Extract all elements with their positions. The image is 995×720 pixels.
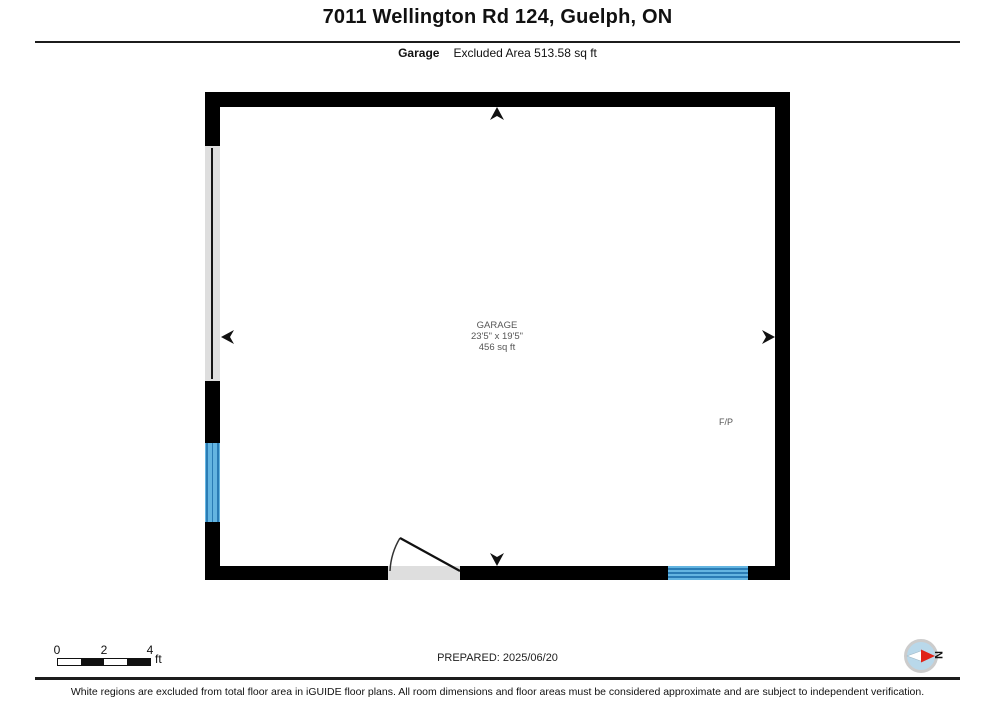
wall-bottom-left <box>205 566 388 580</box>
wall-right <box>775 92 790 580</box>
footer-divider <box>35 677 960 680</box>
disclaimer-text: White regions are excluded from total fl… <box>0 686 995 698</box>
dimension-arrow-left-icon <box>221 330 235 344</box>
floor-label: Garage <box>398 46 439 60</box>
wall-top <box>205 92 790 107</box>
wall-bottom-right <box>748 566 790 580</box>
room-name: GARAGE <box>427 320 567 331</box>
garage-door-line <box>211 148 213 379</box>
dimension-arrow-right-icon <box>761 330 775 344</box>
window-bottom <box>668 566 748 580</box>
excluded-area-label: Excluded Area 513.58 sq ft <box>453 46 596 60</box>
room-label: GARAGE 23'5" x 19'5" 456 sq ft <box>427 320 567 353</box>
garage-door-opening <box>205 146 220 381</box>
header-divider <box>35 41 960 43</box>
wall-bottom-middle <box>460 566 668 580</box>
window-pane-line <box>668 576 748 578</box>
window-pane-line <box>212 443 214 522</box>
room-dimensions: 23'5" x 19'5" <box>427 331 567 342</box>
floorplan-page: 7011 Wellington Rd 124, Guelph, ON Garag… <box>0 0 995 720</box>
window-pane-line <box>668 572 748 574</box>
window-left <box>205 443 220 522</box>
page-title: 7011 Wellington Rd 124, Guelph, ON <box>0 6 995 29</box>
prepared-date-label: PREPARED: 2025/06/20 <box>0 652 995 664</box>
room-area: 456 sq ft <box>427 342 567 353</box>
compass-north-label: N <box>932 651 944 659</box>
dimension-arrow-down-icon <box>490 552 504 566</box>
window-pane-line <box>206 443 208 522</box>
fireplace-label: F/P <box>700 417 752 427</box>
wall-left-middle <box>205 381 220 443</box>
window-pane-line <box>668 568 748 570</box>
plan-subtitle: GarageExcluded Area 513.58 sq ft <box>0 46 995 60</box>
door-swing-icon <box>380 524 472 576</box>
window-pane-line <box>217 443 219 522</box>
dimension-arrow-up-icon <box>490 107 504 121</box>
wall-left-upper <box>205 92 220 146</box>
